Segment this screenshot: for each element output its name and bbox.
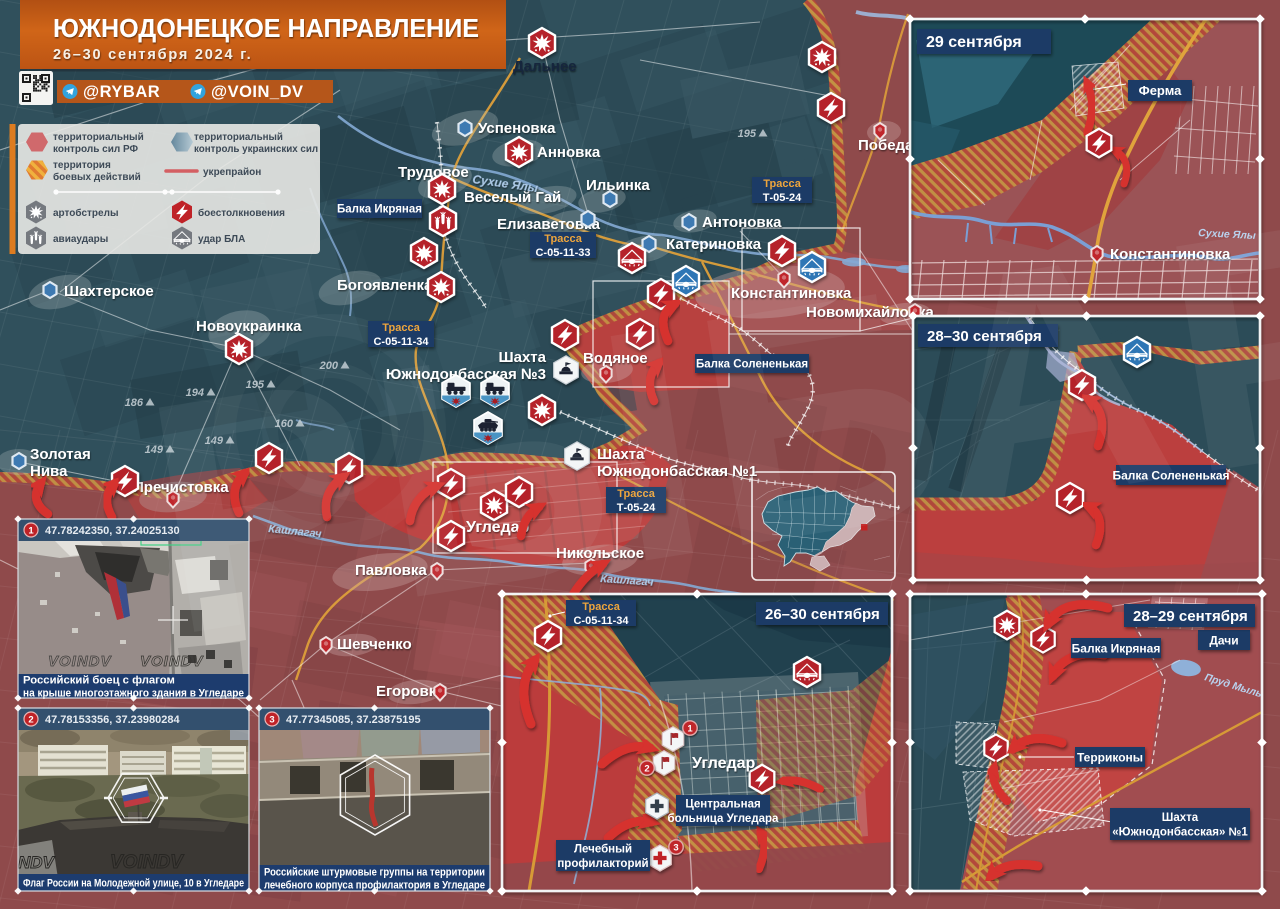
svg-text:боевых действий: боевых действий — [53, 171, 141, 183]
svg-text:Центральная: Центральная — [685, 799, 760, 811]
svg-text:Российский боец с флагом: Российский боец с флагом — [23, 675, 175, 687]
svg-text:Богоявленка: Богоявленка — [337, 277, 433, 294]
svg-text:Угледар: Угледар — [692, 755, 756, 772]
svg-text:@RYBAR: @RYBAR — [83, 83, 160, 101]
svg-text:47.78153356, 37.23980284: 47.78153356, 37.23980284 — [45, 714, 180, 726]
svg-text:3: 3 — [269, 715, 274, 726]
svg-text:Успеновка: Успеновка — [478, 120, 556, 137]
svg-text:ЮЖНОДОНЕЦКОЕ НАПРАВЛЕНИЕ: ЮЖНОДОНЕЦКОЕ НАПРАВЛЕНИЕ — [53, 13, 479, 43]
svg-text:26–30 сентября 2024 г.: 26–30 сентября 2024 г. — [53, 47, 252, 63]
svg-text:Анновка: Анновка — [537, 144, 601, 161]
svg-text:Ферма: Ферма — [1139, 83, 1183, 98]
svg-text:артобстрелы: артобстрелы — [53, 207, 118, 219]
svg-text:Т-05-24: Т-05-24 — [763, 192, 802, 204]
svg-text:3: 3 — [673, 842, 678, 853]
svg-text:Дачи: Дачи — [1209, 633, 1238, 647]
svg-text:VOINDV: VOINDV — [110, 852, 184, 873]
svg-text:территория: территория — [53, 160, 111, 171]
svg-text:195: 195 — [738, 128, 757, 140]
svg-text:2: 2 — [644, 763, 649, 774]
svg-text:авиаудары: авиаудары — [53, 234, 108, 245]
svg-text:VOINDV: VOINDV — [48, 653, 113, 670]
svg-text:«Южнодонбасская» №1: «Южнодонбасская» №1 — [1112, 826, 1248, 838]
svg-text:NDV: NDV — [18, 853, 56, 872]
svg-text:Лечебный: Лечебный — [574, 844, 632, 856]
svg-text:@VOIN_DV: @VOIN_DV — [211, 83, 304, 101]
svg-text:Шахтерское: Шахтерское — [64, 283, 154, 300]
svg-text:28–29 сентября: 28–29 сентября — [1133, 608, 1248, 625]
svg-text:удар БЛА: удар БЛА — [198, 234, 245, 245]
svg-text:профилакторий: профилакторий — [557, 858, 648, 870]
svg-text:контроль украинских сил: контроль украинских сил — [194, 144, 318, 155]
svg-text:Золотая: Золотая — [30, 446, 91, 463]
svg-text:укрепрайон: укрепрайон — [203, 167, 261, 178]
svg-text:2: 2 — [28, 715, 33, 726]
svg-text:Балка Икряная: Балка Икряная — [1072, 641, 1161, 655]
svg-text:Дальнее: Дальнее — [513, 58, 577, 75]
svg-text:Победа: Победа — [858, 137, 914, 154]
svg-text:29 сентября: 29 сентября — [926, 34, 1022, 51]
svg-text:Трасса: Трасса — [763, 178, 802, 190]
svg-text:контроль сил РФ: контроль сил РФ — [53, 144, 139, 155]
svg-text:Нива: Нива — [30, 463, 68, 480]
svg-text:Ильинка: Ильинка — [586, 177, 650, 194]
svg-text:1: 1 — [28, 526, 34, 537]
svg-text:Трасса: Трасса — [544, 233, 583, 245]
svg-text:территориальный: территориальный — [194, 132, 283, 143]
svg-text:С-05-11-33: С-05-11-33 — [535, 247, 590, 259]
svg-text:Шахта: Шахта — [1162, 812, 1199, 824]
svg-text:Терриконы: Терриконы — [1077, 750, 1143, 764]
svg-text:боестолкновения: боестолкновения — [198, 207, 285, 219]
svg-text:больница Угледара: больница Угледара — [668, 813, 780, 825]
svg-text:Антоновка: Антоновка — [702, 214, 782, 231]
svg-text:территориальный: территориальный — [53, 132, 144, 143]
svg-text:Российские штурмовые группы на: Российские штурмовые группы на территори… — [264, 867, 485, 879]
svg-text:47.77345085, 37.23875195: 47.77345085, 37.23875195 — [286, 714, 421, 726]
svg-text:1: 1 — [687, 723, 693, 734]
svg-text:Балка Икряная: Балка Икряная — [337, 204, 422, 216]
